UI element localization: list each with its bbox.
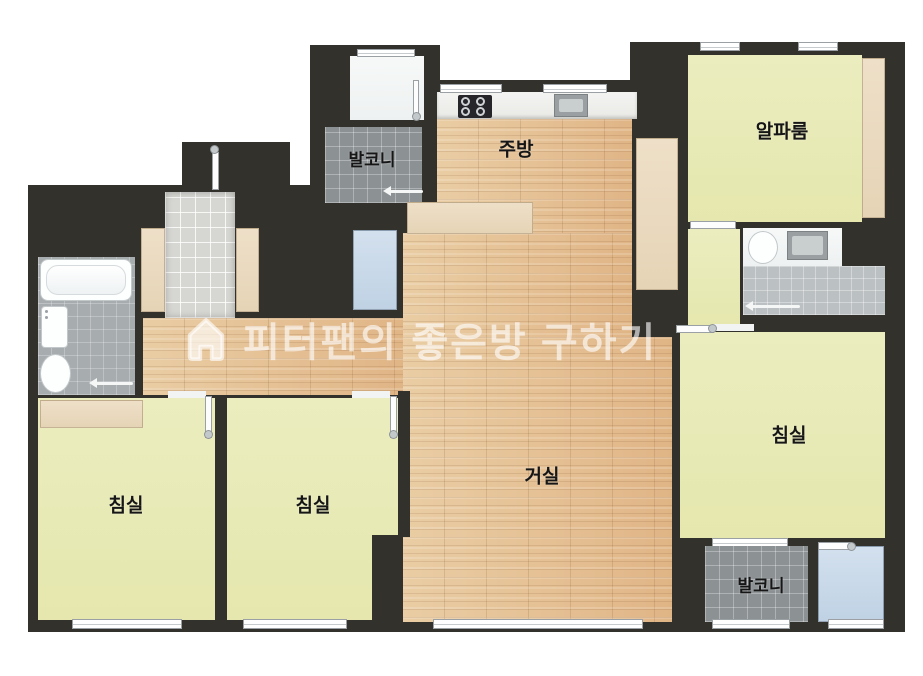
balcony-bottom-label: 발코니 bbox=[738, 572, 785, 597]
alpha-room-window-2 bbox=[798, 42, 838, 51]
balcony-bottom-window bbox=[712, 619, 790, 629]
bedroom-left-label: 침실 bbox=[109, 491, 144, 518]
utility-room-door-handle bbox=[412, 112, 421, 121]
bedroom-right-door-gap bbox=[714, 324, 754, 331]
utility-room-window bbox=[357, 49, 415, 57]
wall-entrance-bump bbox=[182, 142, 290, 192]
kitchen-label: 주방 bbox=[499, 135, 534, 162]
bedroom-right-label: 침실 bbox=[772, 421, 807, 448]
alpha-room-closet bbox=[862, 58, 885, 218]
living-room-floor-upper bbox=[403, 233, 632, 339]
hallway-floor bbox=[143, 318, 405, 395]
shower-bar bbox=[752, 305, 800, 308]
bedroom-middle-corner-pillar bbox=[372, 535, 403, 621]
bedroom-middle-right-wall bbox=[398, 391, 410, 537]
corridor-right-floor bbox=[688, 229, 740, 330]
balcony-top-door-slider bbox=[390, 190, 423, 193]
washbasin bbox=[41, 306, 68, 348]
bedroom-middle-door-gap bbox=[352, 391, 390, 398]
living-room-label: 거실 bbox=[525, 462, 560, 489]
bedroom-left-door-handle bbox=[204, 430, 213, 439]
front-door bbox=[212, 152, 219, 190]
entrance-floor bbox=[165, 192, 235, 318]
toilet-right bbox=[748, 231, 778, 264]
bedroom-middle-window bbox=[243, 619, 347, 629]
bedroom-middle-label: 침실 bbox=[296, 491, 331, 518]
entrance-closet-left bbox=[141, 228, 165, 312]
bathroom-left-door-slider bbox=[96, 382, 133, 385]
living-room-window bbox=[433, 619, 643, 629]
floor-plan: 발코니 주방 알파룸 거실 침실 침실 침실 발코니 피터팬의 좋은방 구하기 bbox=[0, 0, 923, 676]
kitchen-window-1 bbox=[440, 84, 502, 93]
toilet bbox=[40, 354, 71, 393]
bathtub bbox=[40, 259, 132, 301]
washbasin-right bbox=[787, 231, 828, 260]
ac-room-window bbox=[828, 619, 884, 629]
kitchen-window-2 bbox=[543, 84, 607, 93]
alpha-room-window-1 bbox=[700, 42, 740, 51]
ac-room-floor bbox=[818, 546, 884, 622]
alpha-room-door-open bbox=[690, 221, 736, 229]
bedroom-left-window bbox=[72, 619, 182, 629]
alpha-room-label: 알파룸 bbox=[756, 117, 808, 144]
bedroom-middle-door-handle bbox=[389, 430, 398, 439]
refrigerator-nook bbox=[353, 230, 397, 310]
bedroom-left-closet bbox=[40, 400, 143, 428]
entrance-closet-right bbox=[236, 228, 259, 312]
stove-icon bbox=[458, 95, 492, 118]
bedroom-left-door-gap bbox=[168, 391, 206, 398]
front-door-handle bbox=[210, 145, 219, 154]
kitchen-sink-icon bbox=[554, 94, 588, 117]
kitchen-island-counter bbox=[407, 202, 533, 234]
ac-room-door-handle bbox=[847, 542, 856, 551]
balcony-top-label: 발코니 bbox=[349, 146, 396, 171]
bedroom-right-door-handle bbox=[708, 324, 717, 333]
living-side-closet bbox=[636, 138, 678, 290]
